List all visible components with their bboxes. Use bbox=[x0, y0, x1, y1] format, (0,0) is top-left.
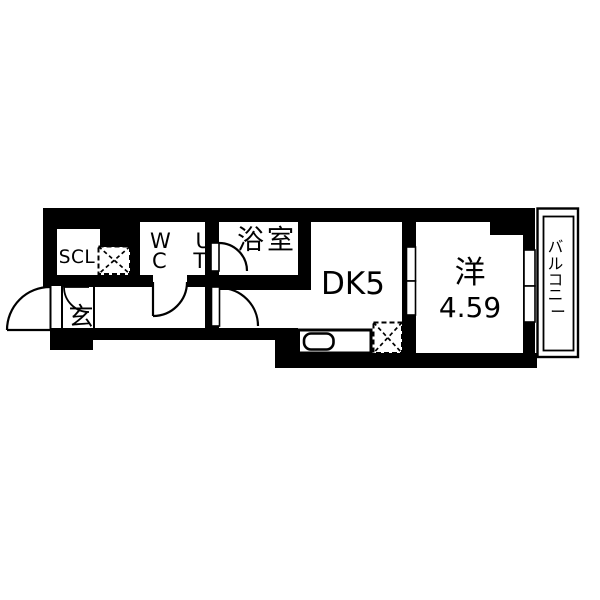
bathroom-room-label: 浴室 bbox=[237, 225, 297, 256]
wall-bottom-band bbox=[275, 353, 537, 368]
wall-hall-bottom bbox=[85, 328, 298, 340]
wall-entrance-block bbox=[50, 328, 93, 350]
wall-bath-right bbox=[298, 208, 311, 290]
floorplan-canvas: SCL W U C T 浴室 玄 DK5 洋 4.59 バ ル コ ニ ー bbox=[0, 0, 600, 600]
floorplan-svg: SCL W U C T 浴室 玄 DK5 洋 4.59 バ ル コ ニ ー bbox=[0, 0, 600, 600]
sliding-door-panel-lower bbox=[407, 281, 416, 315]
western-room-label: 洋 bbox=[455, 255, 486, 291]
window-pane-upper bbox=[524, 250, 535, 286]
wall-left bbox=[43, 208, 57, 286]
entrance-room-label: 玄 bbox=[68, 302, 93, 331]
wall-shelf-right bbox=[130, 247, 140, 287]
window-pane-lower bbox=[524, 286, 535, 322]
balcony-label: バ ル コ ニ ー bbox=[548, 238, 568, 321]
wall-wcut-bottom-right bbox=[187, 275, 205, 287]
canvas-background bbox=[0, 0, 600, 600]
wall-bath-bottom bbox=[219, 275, 311, 290]
scl-room-label: SCL bbox=[59, 247, 96, 268]
dk-door-panel bbox=[212, 287, 220, 326]
wcut-room-label-row2: C T bbox=[152, 249, 216, 273]
western-room-size: 4.59 bbox=[439, 291, 501, 324]
kitchen-sink bbox=[304, 334, 334, 350]
entrance-door-frame bbox=[51, 285, 63, 329]
dk-room-label: DK5 bbox=[321, 266, 385, 302]
wall-block-shelf bbox=[100, 208, 140, 247]
wall-wcut-bottom-left bbox=[140, 275, 153, 287]
sliding-door-panel-upper bbox=[407, 247, 416, 281]
